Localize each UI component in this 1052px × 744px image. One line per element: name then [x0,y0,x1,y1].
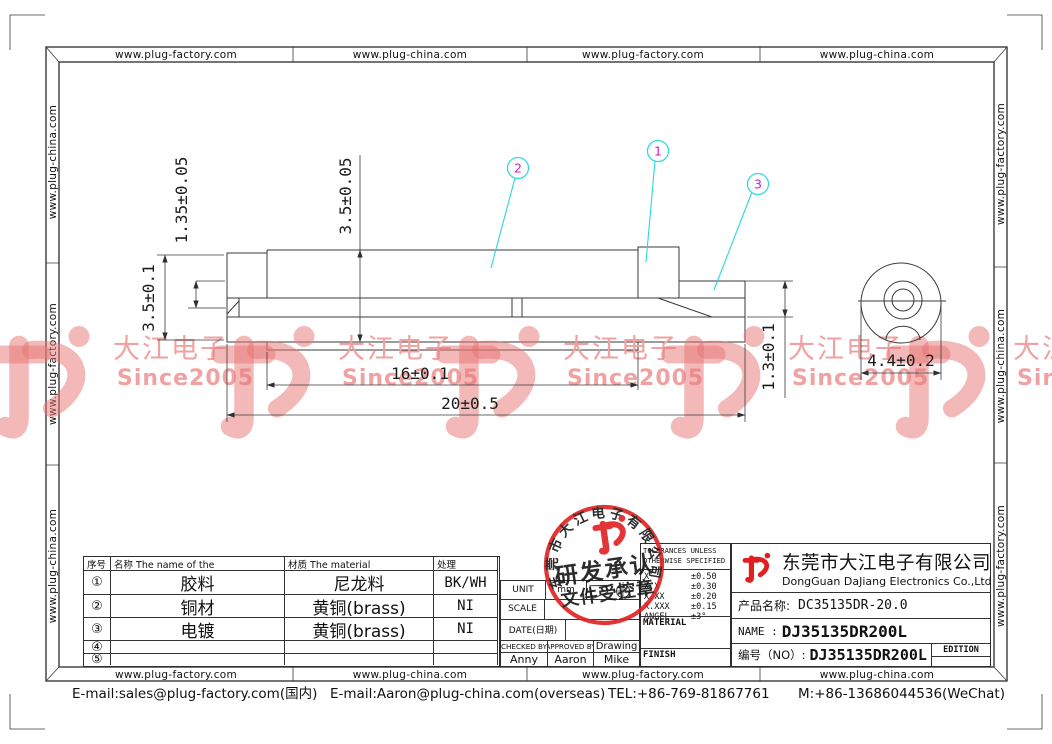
edition-value [932,657,990,666]
band-left-1: www.plug-china.com [47,105,59,219]
part-row-name: 铜材 [111,595,285,618]
end-view [858,263,946,343]
part-row-no: ③ [84,618,111,641]
dim-total-length: 20±0.5 [441,394,499,413]
parts-header-material: 材质 The material [285,557,434,571]
part-row-finish: NI [434,595,498,618]
watermark-brand: 大江电子 [338,334,454,365]
part-row-finish [434,641,498,654]
part-row-no: ⑤ [84,654,111,665]
part-row-no: ④ [84,641,111,654]
left-flange-hatched [227,253,267,298]
product-row: 产品名称: DC35135DR-20.0 [732,593,990,619]
watermark-since: Since2005 [567,366,704,391]
callout-number-2: 2 [514,161,522,176]
band-bottom-1: www.plug-factory.com [115,669,237,681]
watermark-unit: 大江电子 Since2005 [445,326,704,429]
name-row: NAME : DJ35135DR200L [732,619,990,644]
band-right-1: www.plug-factory.com [995,103,1007,225]
parts-header-finish: 处理 [434,557,498,571]
right-collar-hatched [638,247,679,298]
watermark-since: Since2005 [1017,366,1052,391]
band-top-2: www.plug-china.com [353,49,467,61]
part-row-name [111,641,285,654]
dajiang-logo-watermark-icon [0,326,90,429]
tolerance-value: ±0.15 [691,602,727,612]
part-row-name [111,654,285,665]
tolerance-value: ±0.30 [691,582,727,592]
part-row-no: ② [84,595,111,618]
watermark-unit: 大江电子 Since2005 [0,326,254,429]
parts-header-no: 序号 [84,557,111,571]
part-row-name: 电镀 [111,618,285,641]
part-row-finish: BK/WH [434,571,498,595]
watermark-unit: 大江电子 Since2005 [895,326,1052,429]
watermark-row: 大江电子 Since2005 大江电子 Since2005 大江电子 Since… [0,326,1052,429]
approval-stamp: 东莞市大江电子有限公司 研发承认 文件受控章 [517,488,693,652]
company-name-cn: 东莞市大江电子有限公司 [782,549,992,575]
company-row: 东莞市大江电子有限公司 DongGuan DaJiang Electronics… [732,544,990,593]
callout-number-1: 1 [654,144,662,159]
part-row-material: 黄铜(brass) [285,618,434,641]
part-row-material [285,654,434,665]
watermark-brand: 大江电子 [1013,334,1052,365]
band-top-4: www.plug-china.com [820,49,934,61]
number-value: DJ35135DR200L [810,646,927,664]
edition-label: EDITION [932,644,990,657]
dim-body-length: 16±0.1 [391,364,449,383]
band-bottom-2: www.plug-china.com [353,669,467,681]
part-row-material: 尼龙料 [285,571,434,595]
dim-flange-wall: 1.35±0.05 [172,157,191,244]
number-label: 编号（NO）: [738,647,806,663]
tolerance-value: ±0.20 [691,592,727,602]
title-block: 东莞市大江电子有限公司 DongGuan DaJiang Electronics… [731,543,991,667]
approved-by-value: Aaron [547,653,593,666]
footer-email-overseas: E-mail:Aaron@plug-china.com(overseas) [330,686,605,702]
callout-number-3: 3 [754,177,762,192]
band-top-3: www.plug-factory.com [582,49,704,61]
part-row-material [285,641,434,654]
center-pin-notch [512,298,522,317]
drawing-sheet: www.plug-factory.com www.plug-china.com … [0,0,1052,744]
footer-mobile: M:+86-13686044536(WeChat) [798,686,1005,702]
band-left-3: www.plug-china.com [47,509,59,623]
band-bottom-4: www.plug-china.com [820,669,934,681]
parts-table: 序号 名称 The name of the 材质 The material 处理… [83,556,500,667]
checked-by-value: Anny [501,653,547,666]
edition-box: EDITION [931,644,990,666]
watermark-since: Since2005 [117,366,254,391]
drawn-by-value: Mike [593,653,639,666]
dim-tube-id: 1.3±0.1 [759,323,778,390]
band-right-3: www.plug-factory.com [995,505,1007,627]
part-row-name: 胶料 [111,571,285,595]
footer-email-domestic: E-mail:sales@plug-factory.com(国内) [72,686,317,702]
callouts: 2 1 3 [491,141,769,291]
company-name-en: DongGuan DaJiang Electronics Co.,Ltd [782,575,992,588]
name-label: NAME : [738,625,778,638]
footer-tel: TEL:+86-769-81867761 [607,686,770,702]
band-top-1: www.plug-factory.com [115,49,237,61]
product-label: 产品名称: [738,597,790,614]
part-row-material: 黄铜(brass) [285,595,434,618]
dim-body-od: 3.5±0.05 [336,157,355,234]
part-row-finish: NI [434,618,498,641]
dim-left-od: 3.5±0.1 [139,264,158,331]
tolerance-value: ±0.50 [691,572,727,582]
watermark-brand: 大江电子 [563,334,679,365]
band-bottom-3: www.plug-factory.com [582,669,704,681]
part-row-no: ① [84,571,111,595]
name-value: DJ35135DR200L [782,622,907,641]
dim-end-od: 4.4±0.2 [867,351,934,370]
part-row-finish [434,654,498,665]
number-row: 编号（NO）: DJ35135DR200L EDITION [732,644,990,666]
footer-contacts: E-mail:sales@plug-factory.com(国内) E-mail… [72,686,1005,702]
watermark-brand: 大江电子 [113,334,229,365]
product-value: DC35135DR-20.0 [798,598,908,613]
dajiang-logo-icon [737,546,777,590]
parts-header-name: 名称 The name of the [111,557,285,571]
band-right-2: www.plug-china.com [995,309,1007,423]
